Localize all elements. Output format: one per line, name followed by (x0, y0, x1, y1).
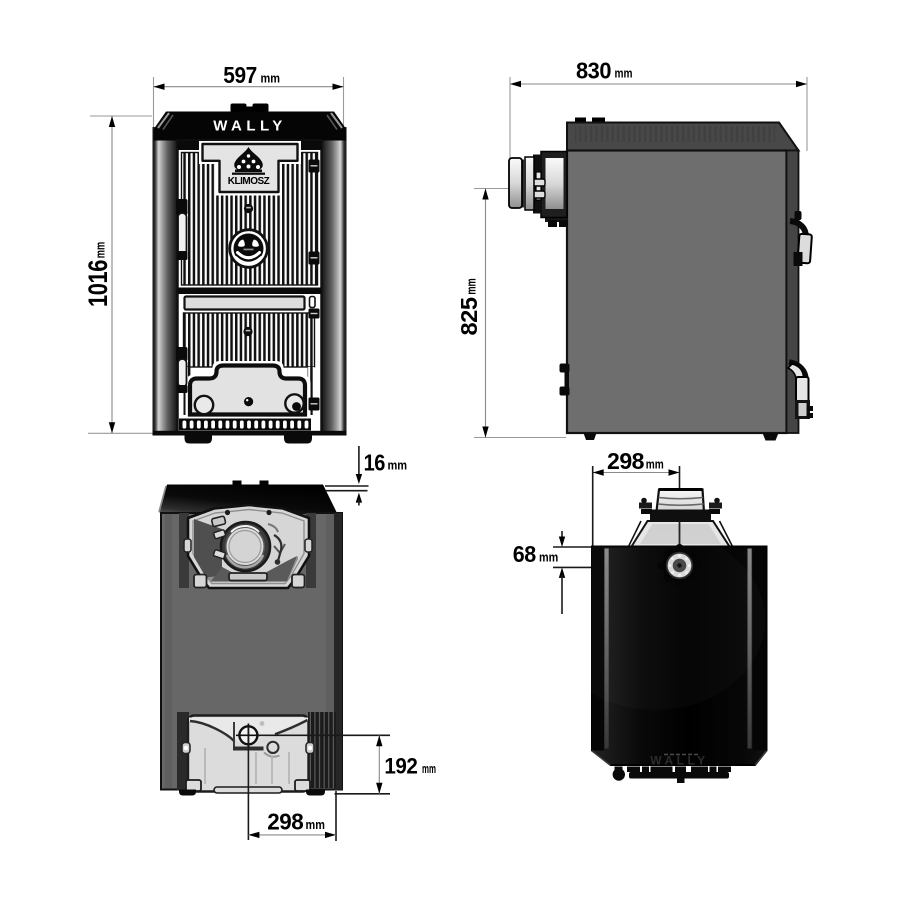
svg-text:mm: mm (388, 458, 408, 473)
svg-text:mm: mm (464, 278, 479, 294)
svg-text:825: 825 (456, 297, 482, 335)
svg-text:mm: mm (539, 550, 558, 565)
svg-text:597: 597 (223, 62, 257, 88)
svg-text:WALLY: WALLY (213, 118, 287, 135)
svg-text:mm: mm (615, 66, 633, 81)
svg-text:KLIMOSZ: KLIMOSZ (228, 176, 270, 187)
svg-text:mm: mm (646, 456, 664, 471)
svg-text:192: 192 (384, 753, 417, 778)
svg-text:mm: mm (306, 817, 325, 832)
svg-text:mm: mm (422, 761, 436, 776)
svg-text:16: 16 (364, 450, 386, 476)
svg-text:WALLY: WALLY (650, 754, 708, 768)
svg-text:298: 298 (267, 809, 303, 835)
svg-text:mm: mm (93, 242, 108, 259)
svg-text:298: 298 (607, 448, 644, 474)
svg-text:68: 68 (513, 541, 536, 567)
svg-text:mm: mm (261, 71, 281, 86)
svg-text:830: 830 (576, 57, 611, 83)
svg-text:1016: 1016 (83, 260, 113, 307)
